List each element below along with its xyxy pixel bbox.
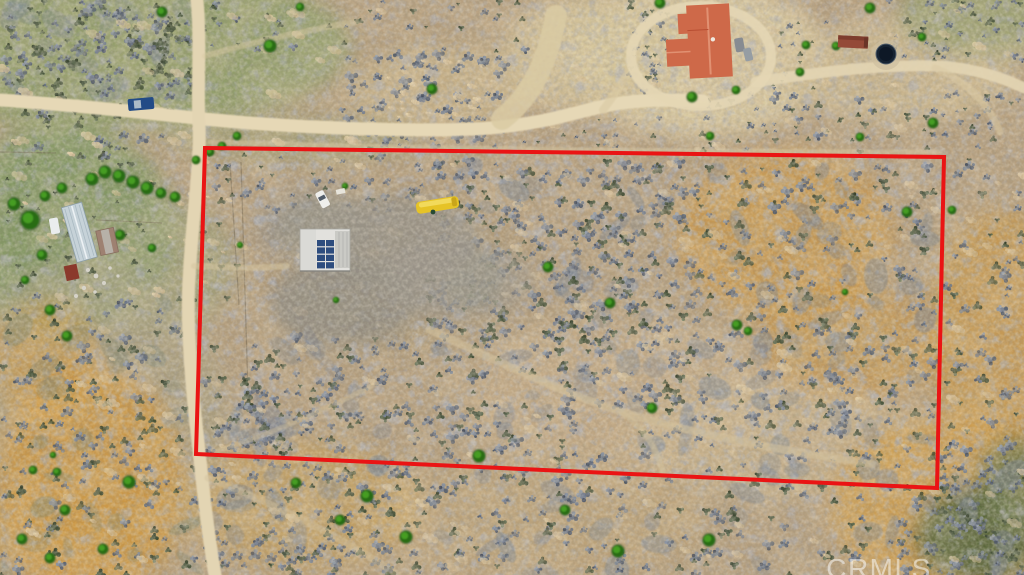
- svg-text:CRMLS: CRMLS: [826, 553, 932, 575]
